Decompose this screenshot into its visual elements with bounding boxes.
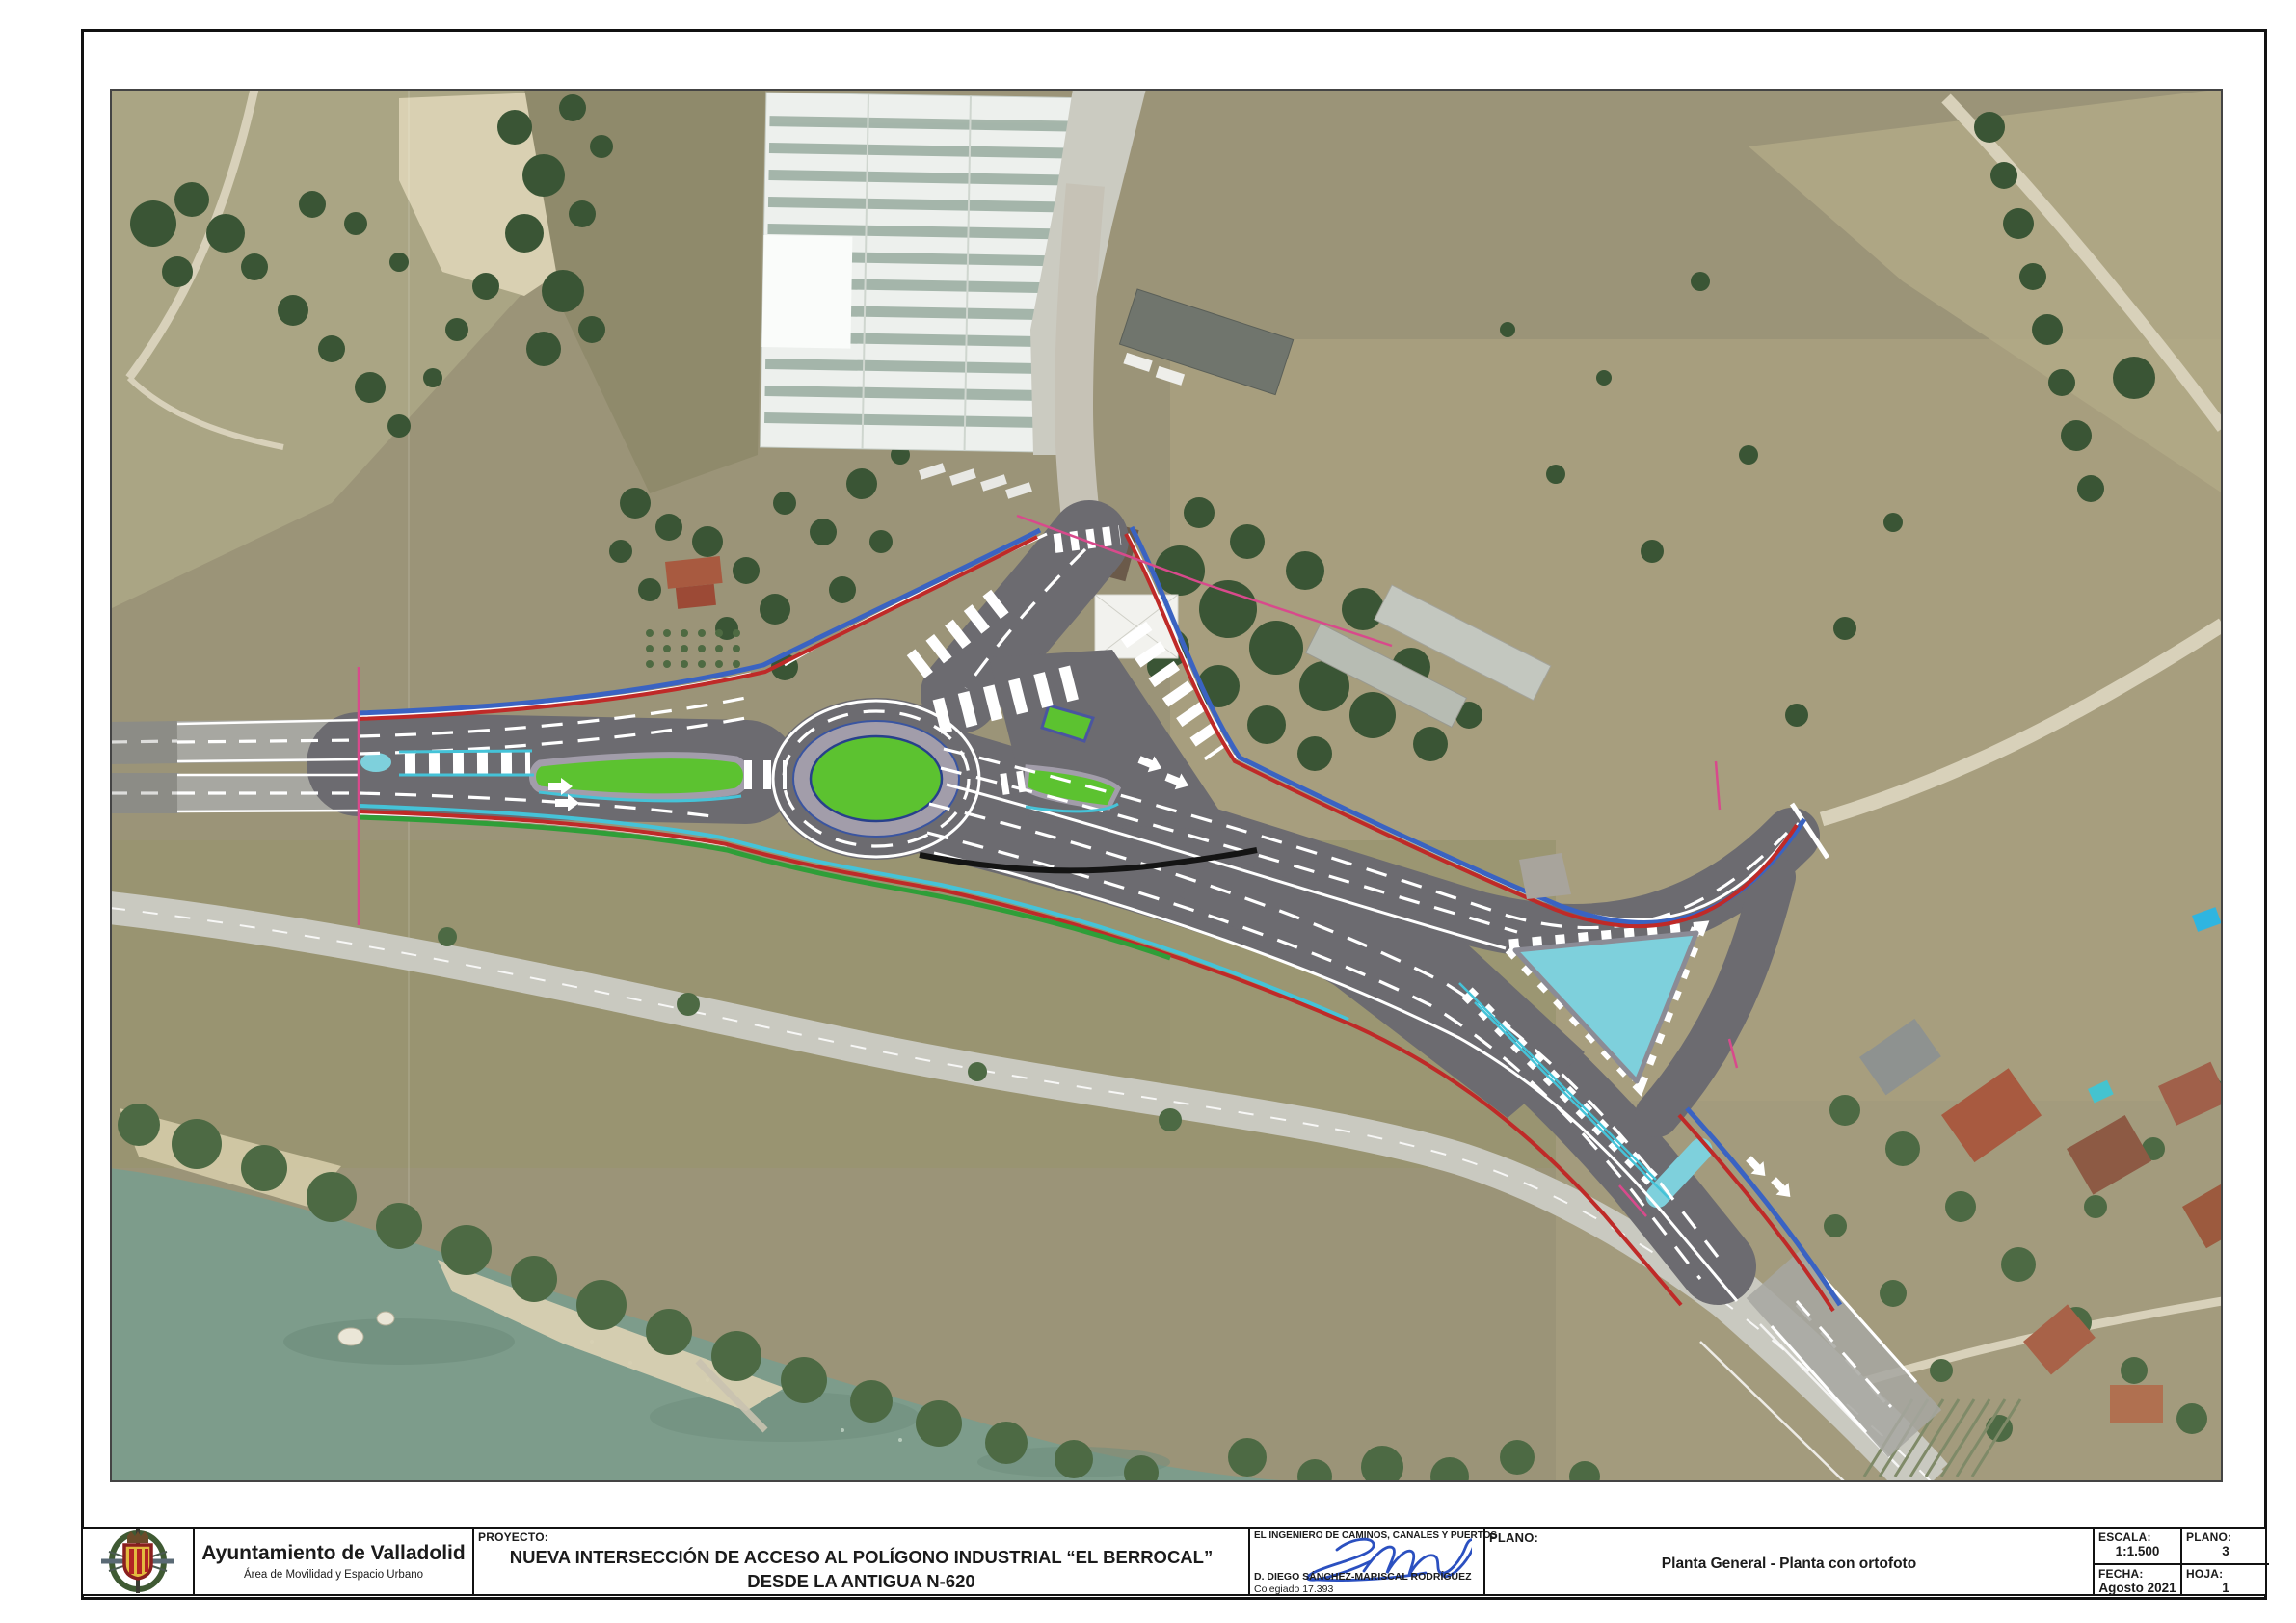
organization-name: Ayuntamiento de Valladolid (195, 1542, 472, 1565)
valladolid-coat-of-arms (85, 1529, 191, 1594)
organization-cell: Ayuntamiento de Valladolid Área de Movil… (193, 1529, 472, 1594)
sheet: Ayuntamiento de Valladolid Área de Movil… (0, 0, 2296, 1623)
plano-label: PLANO: (1489, 1530, 1538, 1545)
escala-value: 1:1.500 (2095, 1544, 2180, 1558)
scale-date-column: ESCALA: 1:1.500 FECHA: Agosto 2021 (2093, 1529, 2180, 1594)
plano-title: Planta General - Planta con ortofoto (1485, 1556, 2093, 1573)
plano-num-box: PLANO: 3 (2182, 1529, 2269, 1563)
map-area (110, 89, 2223, 1482)
engineer-cell: EL INGENIERO DE CAMINOS, CANALES Y PUERT… (1248, 1529, 1483, 1594)
roundabout-center (793, 721, 959, 837)
engineer-name: D. DIEGO SÁNCHEZ-MARISCAL RODRÍGUEZ (1254, 1571, 1472, 1583)
project-title-line1: NUEVA INTERSECCIÓN DE ACCESO AL POLÍGONO… (510, 1547, 1213, 1567)
hoja-label: HOJA: (2186, 1567, 2223, 1581)
plano-num-value: 3 (2182, 1544, 2269, 1558)
project-title-line2: DESDE LA ANTIGUA N-620 (747, 1571, 974, 1591)
roundabout-green-island (811, 736, 942, 821)
escala-label: ESCALA: (2098, 1530, 2151, 1544)
organization-department: Área de Movilidad y Espacio Urbano (195, 1569, 472, 1581)
plano-cell: PLANO: Planta General - Planta con ortof… (1483, 1529, 2093, 1594)
escala-box: ESCALA: 1:1.500 (2095, 1529, 2180, 1563)
industrial-warehouse (761, 93, 1073, 452)
hoja-box: HOJA: 1 (2182, 1563, 2269, 1598)
project-cell: PROYECTO: NUEVA INTERSECCIÓN DE ACCESO A… (472, 1529, 1248, 1594)
logo-cell (83, 1529, 193, 1594)
hoja-value: 1 (2182, 1581, 2269, 1595)
fecha-label: FECHA: (2098, 1567, 2144, 1581)
fecha-value: Agosto 2021 (2095, 1581, 2180, 1595)
fecha-box: FECHA: Agosto 2021 (2095, 1563, 2180, 1598)
plano-num-label: PLANO: (2186, 1530, 2231, 1544)
title-block: Ayuntamiento de Valladolid Área de Movil… (81, 1527, 2267, 1596)
project-title: NUEVA INTERSECCIÓN DE ACCESO AL POLÍGONO… (474, 1545, 1248, 1593)
plano-hoja-column: PLANO: 3 HOJA: 1 (2180, 1529, 2269, 1594)
map-canvas (110, 89, 2223, 1482)
project-label: PROYECTO: (478, 1530, 548, 1544)
engineer-license: Colegiado 17.393 (1254, 1583, 1333, 1595)
